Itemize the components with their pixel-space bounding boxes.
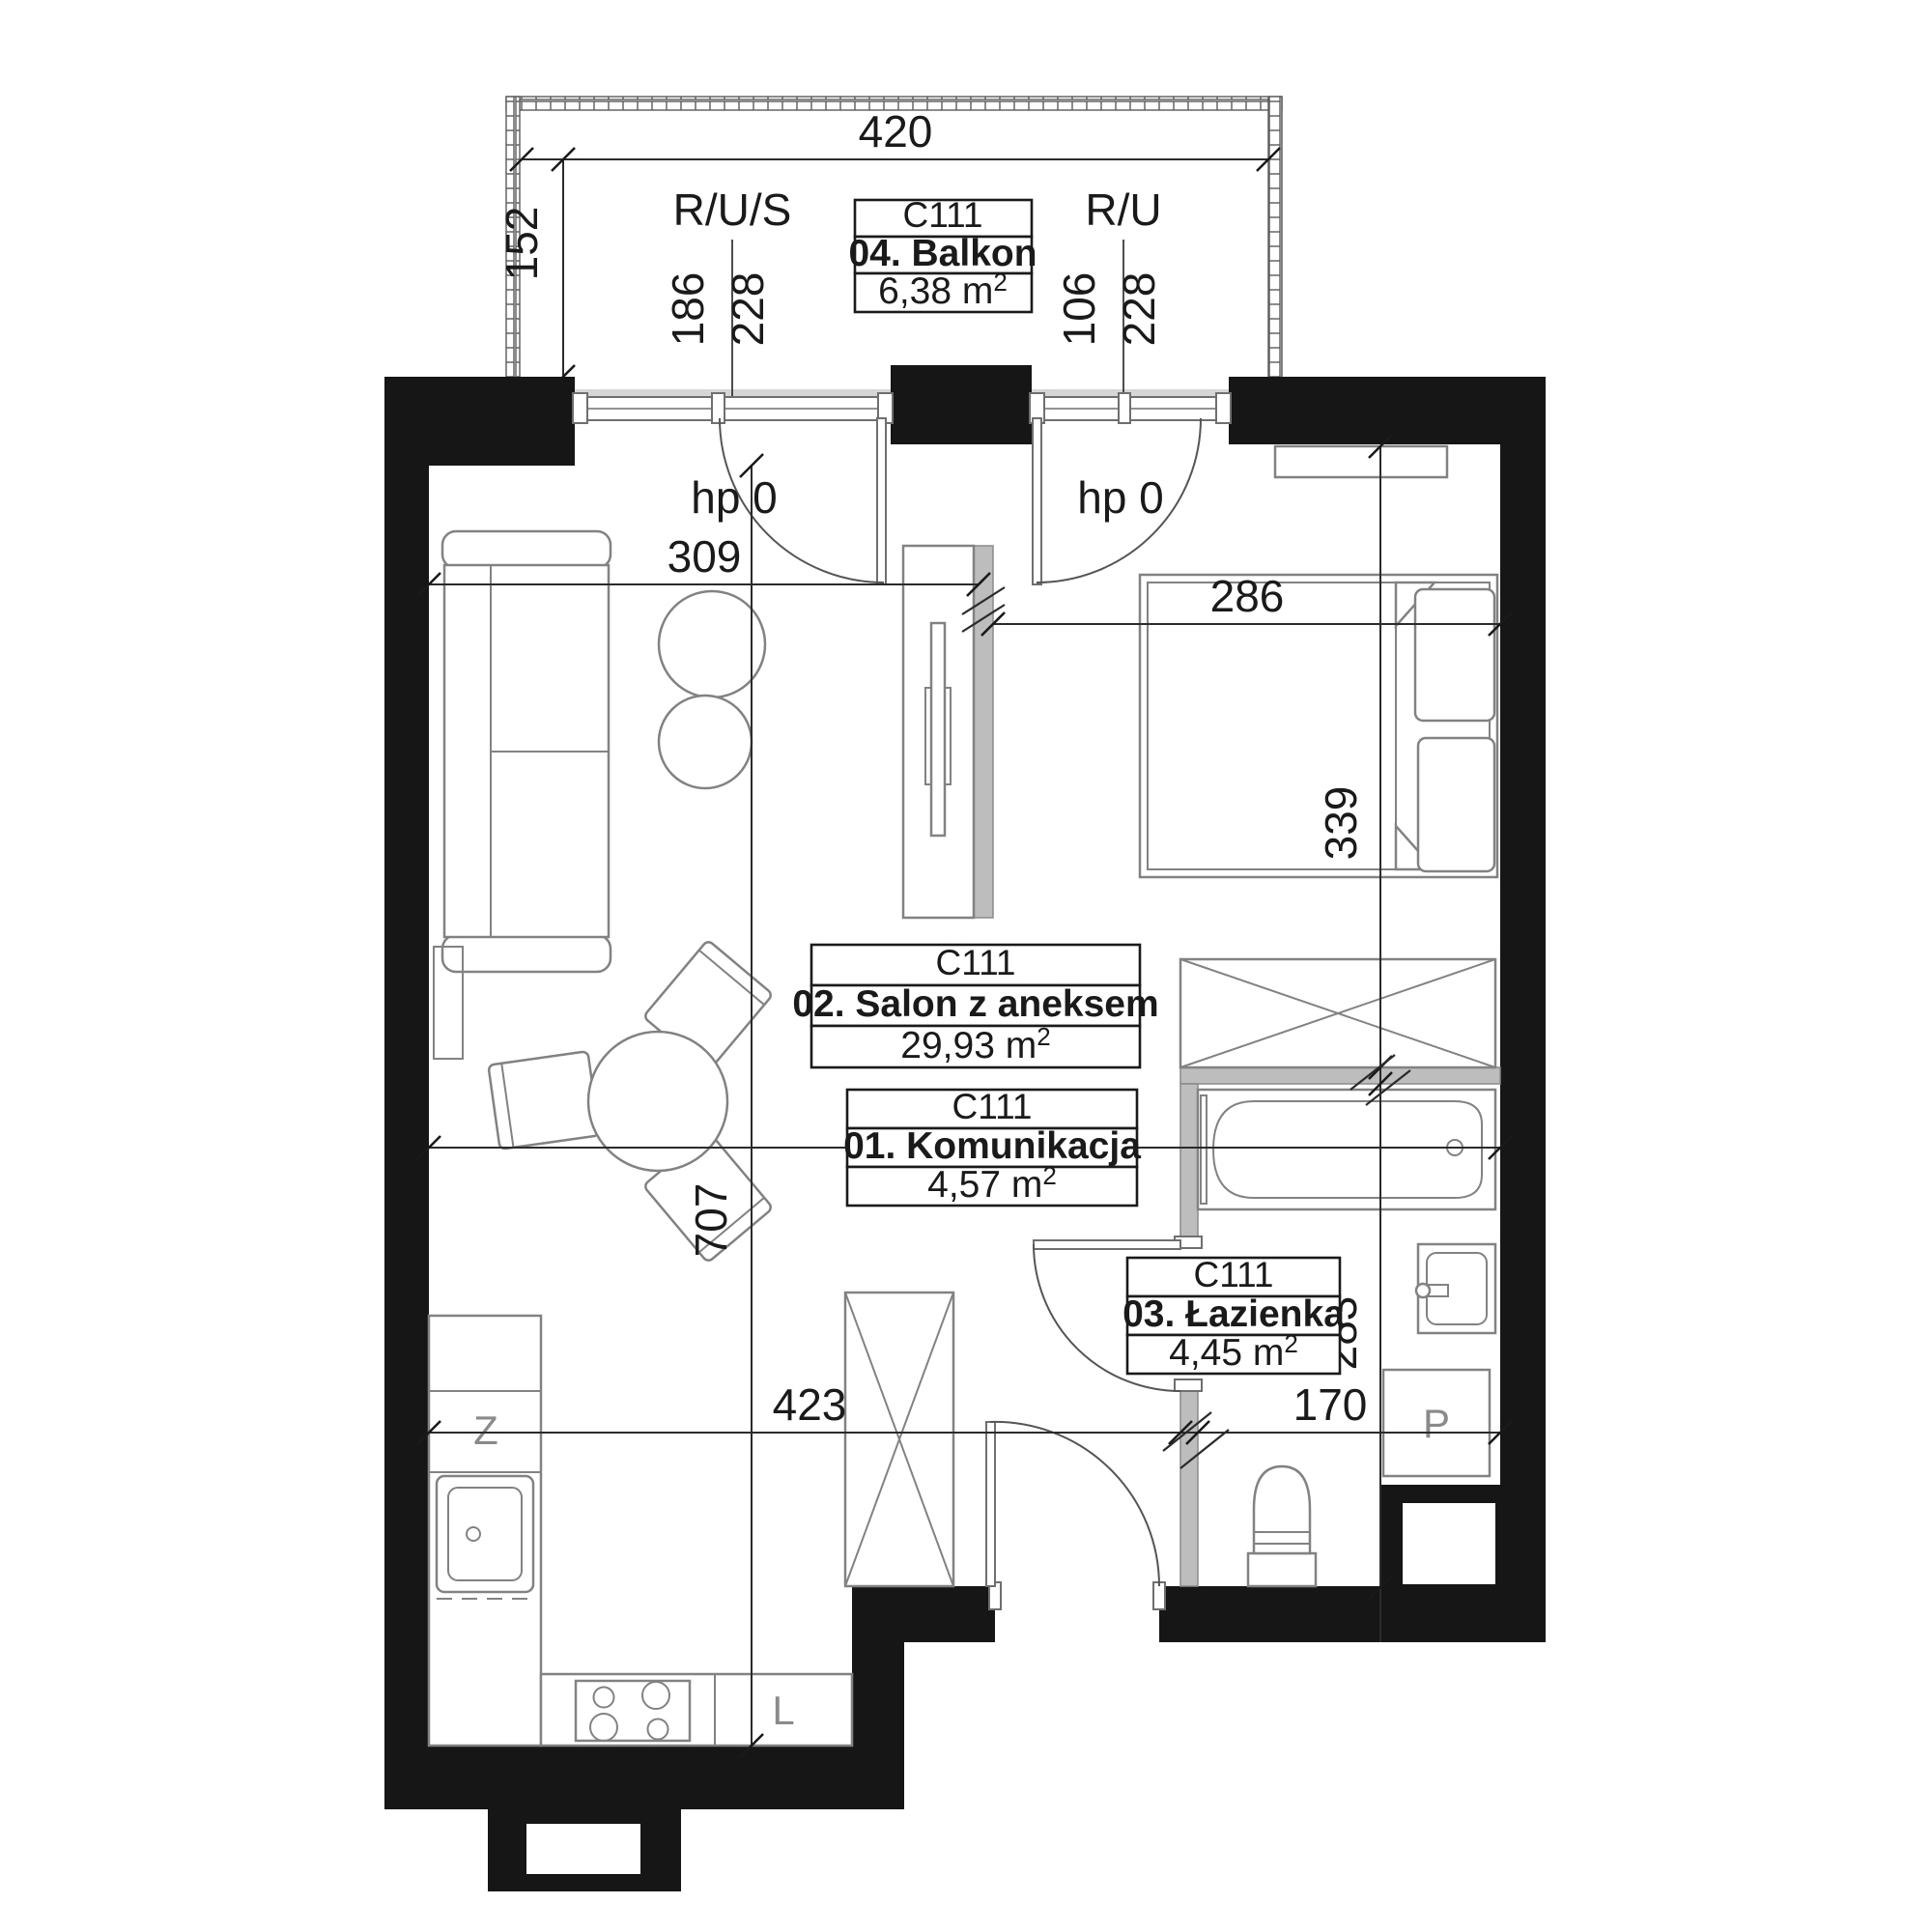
dim-window-left-h: 228 xyxy=(723,272,773,347)
bathroom-wall-upper xyxy=(1180,1084,1198,1246)
entrance-door-swing xyxy=(990,1422,1159,1586)
kitchen-sink-label: Z xyxy=(473,1407,498,1453)
bathroom-wall-top xyxy=(1180,1067,1500,1084)
room-label-balkon: C111 04. Balkon 6,38 m2 xyxy=(848,195,1037,312)
room-code: C111 xyxy=(903,195,983,235)
dining-table xyxy=(588,1032,727,1171)
room-area: 29,93 m2 xyxy=(900,1022,1050,1066)
room-code: C111 xyxy=(936,943,1016,982)
room-label-komunikacja: C111 01. Komunikacja 4,57 m2 xyxy=(843,1087,1141,1206)
pillow-bottom xyxy=(1418,738,1494,871)
room-label-salon: C111 02. Salon z aneksem 29,93 m2 xyxy=(792,943,1158,1067)
dim-balcony-depth: 152 xyxy=(497,207,547,281)
room-name: 01. Komunikacja xyxy=(843,1125,1141,1167)
washing-machine-label: P xyxy=(1423,1401,1450,1446)
fridge-label: L xyxy=(772,1688,794,1733)
room-code: C111 xyxy=(952,1087,1033,1126)
bathroom-door-leaf xyxy=(1034,1240,1180,1249)
bathroom-sink xyxy=(1416,1244,1495,1333)
room-name: 04. Balkon xyxy=(848,233,1037,274)
floor-plan-drawing: 420 152 R/U/S 186 228 R/U 106 228 xyxy=(0,0,1932,1932)
entrance-door xyxy=(986,1422,1165,1609)
dim-window-right-h: 228 xyxy=(1114,272,1164,347)
room-area: 4,57 m2 xyxy=(927,1161,1057,1206)
dim-kitchen-run: 423 xyxy=(773,1379,847,1430)
dim-balcony-width: 420 xyxy=(859,106,933,156)
sofa xyxy=(442,531,611,972)
dim-window-right-w: 106 xyxy=(1054,272,1104,347)
tv-screen xyxy=(931,623,945,836)
coffee-table-large xyxy=(659,591,765,697)
dim-bed-zone-depth: 339 xyxy=(1316,786,1366,861)
window-sill-label-right: hp 0 xyxy=(1077,472,1164,523)
bathroom-wall-lower xyxy=(1180,1384,1198,1586)
riser-label-right: R/U xyxy=(1085,185,1161,235)
washing-machine: P xyxy=(1383,1370,1490,1476)
balcony-door-leaf-left xyxy=(877,418,886,584)
pillow-top xyxy=(1415,589,1494,721)
bedroom-shelf xyxy=(1275,446,1447,477)
entrance-door-leaf xyxy=(986,1422,995,1586)
balcony-railing-right xyxy=(1268,97,1282,380)
riser-label-left: R/U/S xyxy=(673,185,792,235)
coffee-table-small xyxy=(659,696,752,788)
dim-salon-width: 309 xyxy=(668,531,742,582)
dim-interior-depth: 707 xyxy=(686,1183,736,1258)
kitchen-sink xyxy=(437,1476,533,1592)
floor-plan-page: 420 152 R/U/S 186 228 R/U 106 228 xyxy=(0,0,1932,1932)
dim-window-left-w: 186 xyxy=(663,272,713,347)
wardrobe-tall xyxy=(845,1293,953,1586)
balcony-door-leaf-right xyxy=(1033,418,1041,584)
chair xyxy=(488,1051,599,1150)
room-name: 03. Łazienka xyxy=(1122,1293,1345,1335)
toilet xyxy=(1248,1466,1316,1586)
stove xyxy=(576,1681,690,1741)
wardrobe-wide xyxy=(1180,959,1495,1067)
dim-entry-width: 170 xyxy=(1293,1379,1368,1430)
room-label-lazienka: C111 03. Łazienka 4,45 m2 xyxy=(1122,1255,1345,1374)
bathtub xyxy=(1198,1090,1495,1209)
room-code: C111 xyxy=(1194,1255,1274,1294)
room-name: 02. Salon z aneksem xyxy=(792,983,1158,1025)
dim-bedroom-width: 286 xyxy=(1210,571,1285,621)
room-area: 6,38 m2 xyxy=(878,268,1008,312)
room-area: 4,45 m2 xyxy=(1169,1329,1298,1374)
window-sill-label-left: hp 0 xyxy=(691,472,778,523)
